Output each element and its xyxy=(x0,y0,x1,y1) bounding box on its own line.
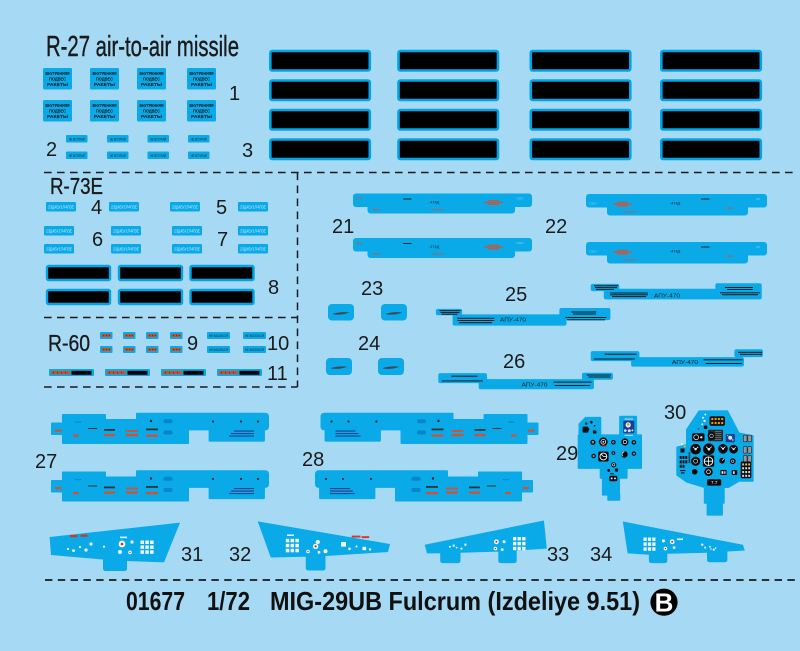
svg-text:-474Д: -474Д xyxy=(429,245,440,249)
svg-text:5: 5 xyxy=(216,197,227,219)
svg-text:21: 21 xyxy=(332,216,354,238)
svg-text:УЗЕЛ: УЗЕЛ xyxy=(516,197,524,201)
svg-text:1: 1 xyxy=(229,83,240,105)
svg-text:1/72: 1/72 xyxy=(207,586,250,616)
svg-text:№ДЕ: №ДЕ xyxy=(726,206,733,210)
svg-text:23Д4БУ1П4ПЗЕ: 23Д4БУ1П4ПЗЕ xyxy=(172,205,198,210)
svg-text:АПУ-470: АПУ-470 xyxy=(654,293,680,299)
svg-text:01677: 01677 xyxy=(126,586,185,616)
svg-text:31: 31 xyxy=(181,544,203,566)
svg-text:24: 24 xyxy=(358,333,380,355)
svg-text:АПУ: АПУ xyxy=(356,197,363,201)
svg-text:33: 33 xyxy=(547,544,569,566)
svg-text:10: 10 xyxy=(267,333,289,355)
svg-text:РАКЕТЫ: РАКЕТЫ xyxy=(141,114,163,119)
svg-text:ПОДВЕС: ПОДВЕС xyxy=(96,109,114,114)
svg-text:ПОДХОД: ПОДХОД xyxy=(431,252,444,256)
svg-text:3: 3 xyxy=(242,140,253,162)
svg-text:РАКЕТЫ: РАКЕТЫ xyxy=(94,114,116,119)
svg-text:ВНУТРЕННЯЯ: ВНУТРЕННЯЯ xyxy=(190,103,214,108)
svg-text:УЗЕЛ: УЗЕЛ xyxy=(589,202,597,206)
svg-text:ПОДВЕС: ПОДВЕС xyxy=(193,109,211,114)
svg-text:РАКЕТЫ: РАКЕТЫ xyxy=(191,114,213,119)
svg-text:АПУ-470: АПУ-470 xyxy=(500,317,526,323)
svg-text:23Д4БУ1П4ПЗЕ: 23Д4БУ1П4ПЗЕ xyxy=(240,247,266,252)
svg-text:ВНУТРЕННЯЯ: ВНУТРЕННЯЯ xyxy=(93,71,117,76)
svg-text:32: 32 xyxy=(229,544,251,566)
svg-text:2: 2 xyxy=(46,139,57,161)
svg-text:28: 28 xyxy=(302,449,324,471)
svg-text:АПУ-470: АПУ-470 xyxy=(522,382,548,388)
svg-text:23Д4БУ1П4ПЗЕ: 23Д4БУ1П4ПЗЕ xyxy=(46,229,72,234)
svg-text:ПОДВЕС: ПОДВЕС xyxy=(143,109,161,114)
svg-text:MIG-29UB Fulcrum (Izdeliye 9.5: MIG-29UB Fulcrum (Izdeliye 9.51) xyxy=(270,586,640,616)
svg-text:РАКЕТЫ: РАКЕТЫ xyxy=(191,82,213,87)
svg-text:23Д4БУ1П4ПЗЕ: 23Д4БУ1П4ПЗЕ xyxy=(240,205,266,210)
svg-text:НЕ КАСАТЬСЯ: НЕ КАСАТЬСЯ xyxy=(209,334,228,338)
svg-text:ПОДВЕС: ПОДВЕС xyxy=(49,77,67,82)
svg-text:23Д4БУ1П4ПЗЕ: 23Д4БУ1П4ПЗЕ xyxy=(174,247,200,252)
svg-text:НЕ ВСТУПАЙ: НЕ ВСТУПАЙ xyxy=(150,154,166,158)
svg-text:27: 27 xyxy=(35,451,57,473)
svg-text:№ДЕ: №ДЕ xyxy=(373,208,380,212)
svg-text:ВНУТРЕННЯЯ: ВНУТРЕННЯЯ xyxy=(46,103,70,108)
svg-text:-474Д: -474Д xyxy=(670,250,681,254)
svg-text:ПОДВЕС: ПОДВЕС xyxy=(143,77,161,82)
svg-text:ВНУТРЕННЯЯ: ВНУТРЕННЯЯ xyxy=(46,71,70,76)
svg-text:РАКЕТЫ: РАКЕТЫ xyxy=(94,82,116,87)
svg-text:23Д4БУ1П4ПЗЕ: 23Д4БУ1П4ПЗЕ xyxy=(113,229,139,234)
svg-text:23Д4БУ1П4ПЗЕ: 23Д4БУ1П4ПЗЕ xyxy=(111,205,137,210)
svg-text:АПУ: АПУ xyxy=(356,242,363,246)
svg-text:-474Д: -474Д xyxy=(670,202,681,206)
svg-text:22: 22 xyxy=(545,216,567,238)
svg-text:УЗЕЛ: УЗЕЛ xyxy=(516,241,524,245)
svg-text:23Д4БУ1П4ПЗЕ: 23Д4БУ1П4ПЗЕ xyxy=(46,247,72,252)
svg-text:ПОДХОД: ПОДХОД xyxy=(431,208,444,212)
svg-text:ПОДВЕС: ПОДВЕС xyxy=(96,77,114,82)
svg-text:23Д4БУ1П4ПЗЕ: 23Д4БУ1П4ПЗЕ xyxy=(48,205,74,210)
svg-text:25: 25 xyxy=(505,284,527,306)
svg-text:НЕ ВСТУПАЙ: НЕ ВСТУПАЙ xyxy=(191,154,207,158)
svg-text:34: 34 xyxy=(590,544,612,566)
svg-text:R-73E: R-73E xyxy=(50,173,103,199)
svg-text:ВНУТРЕННЯЯ: ВНУТРЕННЯЯ xyxy=(140,71,164,76)
svg-text:23Д4БУ1П4ПЗЕ: 23Д4БУ1П4ПЗЕ xyxy=(113,247,139,252)
svg-text:6: 6 xyxy=(92,229,103,251)
svg-text:ПОДВЕС: ПОДВЕС xyxy=(49,109,67,114)
svg-text:ВНУТРЕННЯЯ: ВНУТРЕННЯЯ xyxy=(140,103,164,108)
svg-text:R-60: R-60 xyxy=(48,330,90,356)
svg-text:11: 11 xyxy=(267,363,288,385)
svg-text:НЕ КАСАТЬСЯ: НЕ КАСАТЬСЯ xyxy=(245,348,264,352)
svg-text:АП: АП xyxy=(756,197,760,201)
svg-text:РАКЕТЫ: РАКЕТЫ xyxy=(47,82,69,87)
svg-text:УЗЕЛ: УЗЕЛ xyxy=(589,250,597,254)
svg-text:9: 9 xyxy=(187,333,198,355)
svg-text:НЕ ВСТУПАЙ: НЕ ВСТУПАЙ xyxy=(191,137,207,141)
svg-text:29: 29 xyxy=(556,443,578,465)
svg-text:НЕ ВСТУПАЙ: НЕ ВСТУПАЙ xyxy=(110,137,126,141)
svg-text:R-27 air-to-air missile: R-27 air-to-air missile xyxy=(46,31,239,63)
svg-text:НЕ ВСТУПАЙ: НЕ ВСТУПАЙ xyxy=(150,137,166,141)
svg-text:30: 30 xyxy=(664,402,686,424)
svg-text:23Д4БУ1П4ПЗЕ: 23Д4БУ1П4ПЗЕ xyxy=(240,229,266,234)
svg-text:7: 7 xyxy=(217,229,228,251)
svg-text:НЕ ВСТУПАЙ: НЕ ВСТУПАЙ xyxy=(69,137,85,141)
svg-text:НЕ КАСАТЬСЯ: НЕ КАСАТЬСЯ xyxy=(245,334,264,338)
svg-text:ПОДВЕС: ПОДВЕС xyxy=(193,77,211,82)
svg-text:№ДЕ: №ДЕ xyxy=(373,252,380,256)
svg-text:23Д4БУ1П4ПЗЕ: 23Д4БУ1П4ПЗЕ xyxy=(174,229,200,234)
svg-text:4: 4 xyxy=(91,197,102,219)
svg-text:НЕ ВСТУПАЙ: НЕ ВСТУПАЙ xyxy=(69,154,85,158)
svg-text:23: 23 xyxy=(361,278,383,300)
svg-text:АП: АП xyxy=(756,245,760,249)
svg-text:№ДЕ: №ДЕ xyxy=(726,254,733,258)
svg-text:НЕ ВСТУПАЙ: НЕ ВСТУПАЙ xyxy=(110,154,126,158)
svg-text:7.7: 7.7 xyxy=(711,480,718,485)
svg-text:РАКЕТЫ: РАКЕТЫ xyxy=(141,82,163,87)
svg-text:АПУ-470: АПУ-470 xyxy=(672,360,698,366)
svg-text:26: 26 xyxy=(503,351,525,373)
svg-text:ПОДХОД: ПОДХОД xyxy=(623,210,636,214)
svg-text:НЕ КАСАТЬСЯ: НЕ КАСАТЬСЯ xyxy=(209,348,228,352)
svg-text:РАКЕТЫ: РАКЕТЫ xyxy=(47,114,69,119)
svg-text:-474Д: -474Д xyxy=(429,201,440,205)
svg-text:ВНУТРЕННЯЯ: ВНУТРЕННЯЯ xyxy=(93,103,117,108)
svg-text:ПОДХОД: ПОДХОД xyxy=(623,258,636,262)
svg-text:8: 8 xyxy=(268,277,279,299)
svg-text:B: B xyxy=(655,587,674,617)
svg-text:ВНУТРЕННЯЯ: ВНУТРЕННЯЯ xyxy=(190,71,214,76)
